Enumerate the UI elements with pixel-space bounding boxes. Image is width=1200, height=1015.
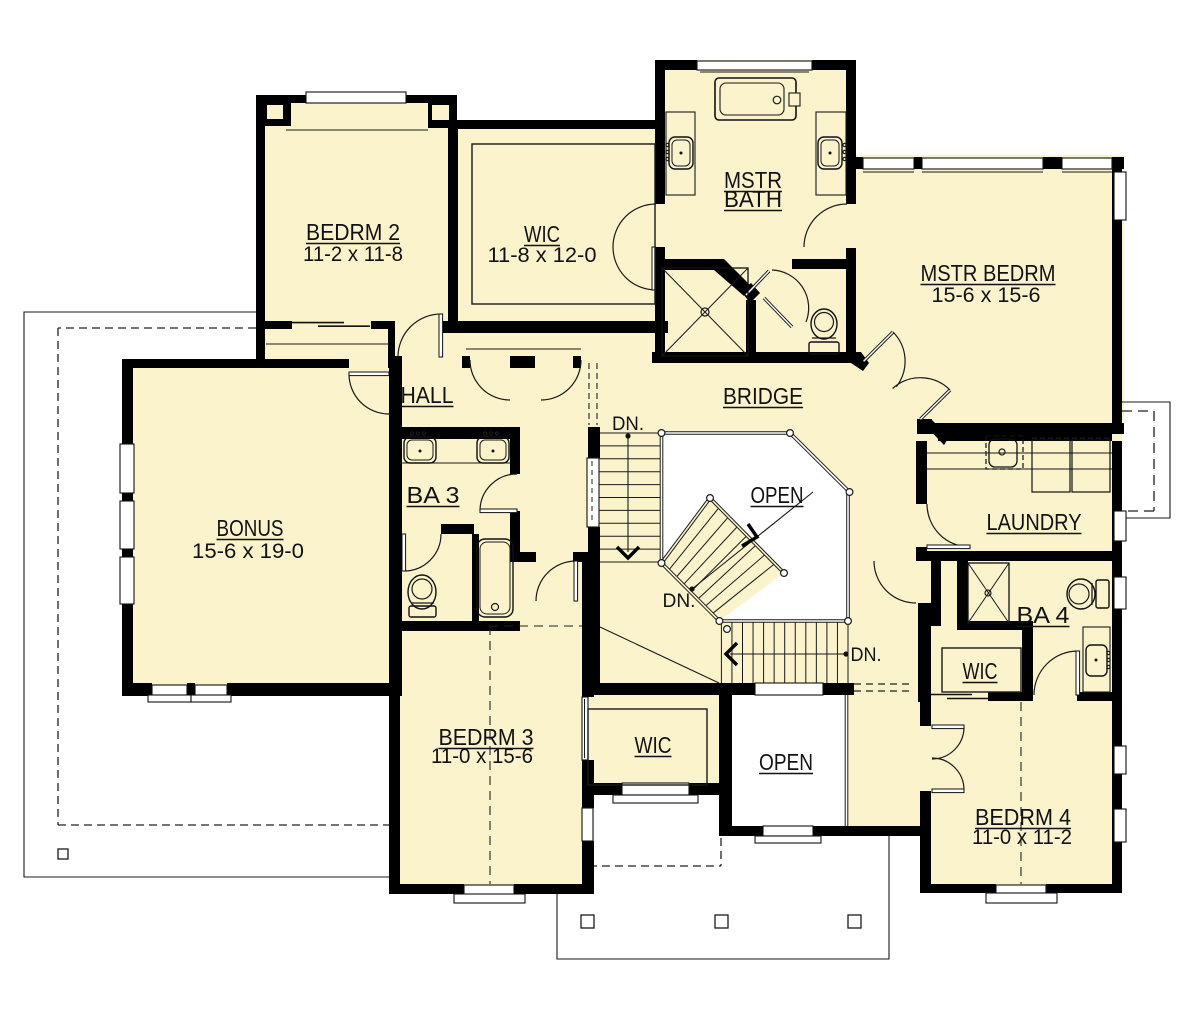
svg-text:DN.: DN. [663,591,696,612]
svg-text:BATH: BATH [724,186,782,212]
svg-text:15-6 x 19-0: 15-6 x 19-0 [192,540,304,563]
svg-text:OPEN: OPEN [751,482,804,508]
svg-text:OPEN: OPEN [759,749,813,775]
svg-text:DN.: DN. [612,414,644,435]
svg-text:11-0 x 11-2: 11-0 x 11-2 [972,826,1072,849]
svg-text:BA 3: BA 3 [407,482,460,508]
svg-text:BA 4: BA 4 [1017,602,1070,628]
svg-text:BRIDGE: BRIDGE [723,383,803,409]
svg-text:11-8 x 12-0: 11-8 x 12-0 [488,244,597,267]
svg-text:WIC: WIC [635,732,672,758]
svg-text:BEDRM 2: BEDRM 2 [306,219,400,245]
svg-text:WIC: WIC [963,658,998,684]
svg-text:15-6 x 15-6: 15-6 x 15-6 [932,284,1041,307]
svg-text:DN.: DN. [851,645,882,666]
svg-text:LAUNDRY: LAUNDRY [987,509,1082,535]
svg-text:11-2 x 11-8: 11-2 x 11-8 [303,243,403,266]
svg-text:MSTR BEDRM: MSTR BEDRM [921,260,1056,286]
svg-text:HALL: HALL [401,382,454,408]
svg-text:BONUS: BONUS [217,515,284,541]
svg-text:11-0 x 15-6: 11-0 x 15-6 [431,745,533,768]
